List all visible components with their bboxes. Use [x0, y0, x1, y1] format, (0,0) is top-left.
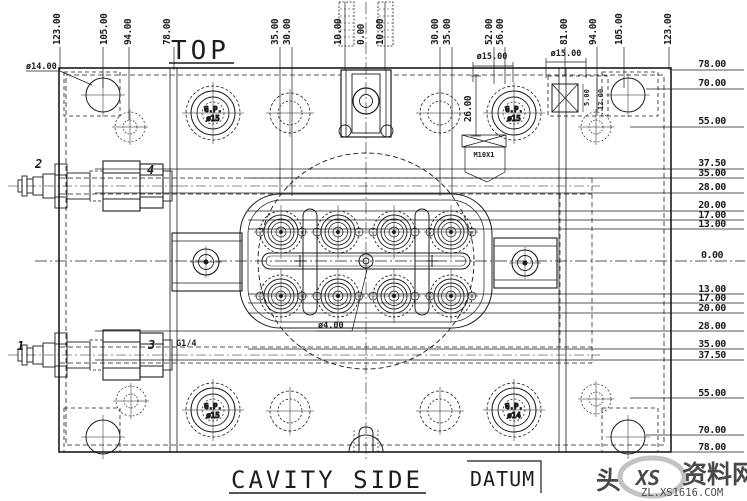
threaded-hole: [578, 381, 614, 417]
right-dim: 28.00: [698, 182, 726, 193]
m10-label: M10X1: [473, 151, 494, 159]
balloon-1: 1: [17, 339, 24, 353]
right-dim: 55.00: [698, 116, 726, 127]
bottom-title: CAVITY SIDE: [231, 466, 423, 494]
top-dim: 105.00: [614, 13, 625, 45]
return-pins: [266, 89, 464, 435]
guide-pin-top-left: G.P. ø15: [182, 82, 244, 144]
right-dim: 55.00: [698, 388, 726, 399]
top-dim: 105.00: [99, 13, 110, 45]
gp-size: ø15: [507, 114, 521, 123]
annotations: ø14.00 ø15.00 ø15.00 ø4.00 M10X1 G1/4 26…: [17, 49, 605, 353]
datum-label: DATUM: [470, 467, 535, 491]
top-dim: 35.00: [270, 18, 281, 45]
cavity: [254, 205, 308, 259]
dia14-label: ø14.00: [26, 62, 57, 72]
watermark: 头 XS 资料网 ZL.XS1616.COM: [596, 458, 747, 499]
threaded-hole: [113, 383, 149, 419]
dim26-label: 26.00: [463, 95, 474, 122]
dia4-label: ø4.00: [318, 321, 344, 331]
right-dim: 20.00: [698, 303, 726, 314]
right-dim: 0.00: [701, 250, 724, 261]
right-dim: 13.00: [698, 219, 726, 230]
right-dim: 78.00: [698, 442, 726, 453]
gp-label: G.P.: [505, 105, 523, 114]
dia15-right-label: ø15.00: [551, 49, 582, 59]
right-dim: 70.00: [698, 425, 726, 436]
g14-label: G1/4: [176, 339, 196, 349]
top-dim: 35.00: [442, 18, 453, 45]
gp-label: G.P.: [204, 105, 222, 114]
view-title: TOP: [171, 36, 230, 66]
dim12-label: 12.00: [597, 89, 605, 110]
right-dim: 28.00: [698, 321, 726, 332]
cavity: [311, 205, 365, 259]
watermark-prefix: 头: [596, 466, 621, 495]
cavity: [424, 269, 478, 323]
clamp-block-left: [172, 233, 242, 291]
gp-label: G.P.: [204, 402, 222, 411]
right-dim: 35.00: [698, 339, 726, 350]
top-dim: 52.00: [484, 18, 495, 45]
right-dim: 70.00: [698, 78, 726, 89]
watermark-brand: 资料网: [682, 460, 747, 489]
top-dim: 30.00: [430, 18, 441, 45]
top-dimensions: 123.00 105.00 94.00 78.00 35.00 30.00 10…: [52, 13, 674, 45]
top-dim: 94.00: [123, 18, 134, 45]
return-pin: [416, 387, 464, 435]
cooling-channels: [60, 178, 600, 363]
right-dim: 37.50: [698, 350, 726, 361]
top-dim: 0.00: [356, 23, 367, 45]
balloon-4: 4: [147, 163, 154, 177]
top-dim: 10.00: [333, 18, 344, 45]
top-dim: 30.00: [282, 18, 293, 45]
cavity: [367, 205, 421, 259]
threaded-holes: [112, 109, 614, 419]
gp-size: ø14: [507, 411, 521, 420]
cavity: [367, 269, 421, 323]
mold-plate-drawing: G.P. ø15 G.P. ø15 G.P. ø15 G.P. ø14: [0, 0, 747, 501]
top-dim: 123.00: [52, 13, 63, 45]
return-pin: [266, 89, 314, 137]
gp-label: G.P.: [505, 402, 523, 411]
threaded-hole: [112, 109, 148, 145]
dim5-label: 5.00: [583, 89, 591, 106]
top-dim: 123.00: [663, 13, 674, 45]
top-dim: 56.00: [495, 18, 506, 45]
right-dim: 35.00: [698, 168, 726, 179]
cavity: [424, 205, 478, 259]
guide-pin-bottom-left: G.P. ø15: [182, 379, 244, 441]
gp-size: ø15: [206, 114, 220, 123]
right-dimensions: 78.00 70.00 55.00 37.50 35.00 28.00 20.0…: [698, 59, 726, 453]
top-dim: 94.00: [588, 18, 599, 45]
guide-pin-bottom-right: G.P. ø14: [483, 379, 545, 441]
dia15-left-label: ø15.00: [477, 52, 508, 62]
top-dim: 81.00: [559, 18, 570, 45]
balloon-2: 2: [34, 157, 42, 171]
clamp-block-right: [494, 238, 557, 288]
watermark-site: ZL.XS1616.COM: [641, 487, 723, 499]
balloon-3: 3: [147, 338, 155, 352]
return-pin: [266, 387, 314, 435]
right-dim: 78.00: [698, 59, 726, 70]
threaded-hole: [578, 109, 614, 145]
cavity: [311, 269, 365, 323]
cad-drawing-canvas: G.P. ø15 G.P. ø15 G.P. ø15 G.P. ø14: [0, 0, 747, 501]
corner-circle: [606, 73, 650, 117]
cavity: [254, 269, 308, 323]
gp-size: ø15: [206, 411, 220, 420]
top-dim: 10.00: [375, 18, 386, 45]
